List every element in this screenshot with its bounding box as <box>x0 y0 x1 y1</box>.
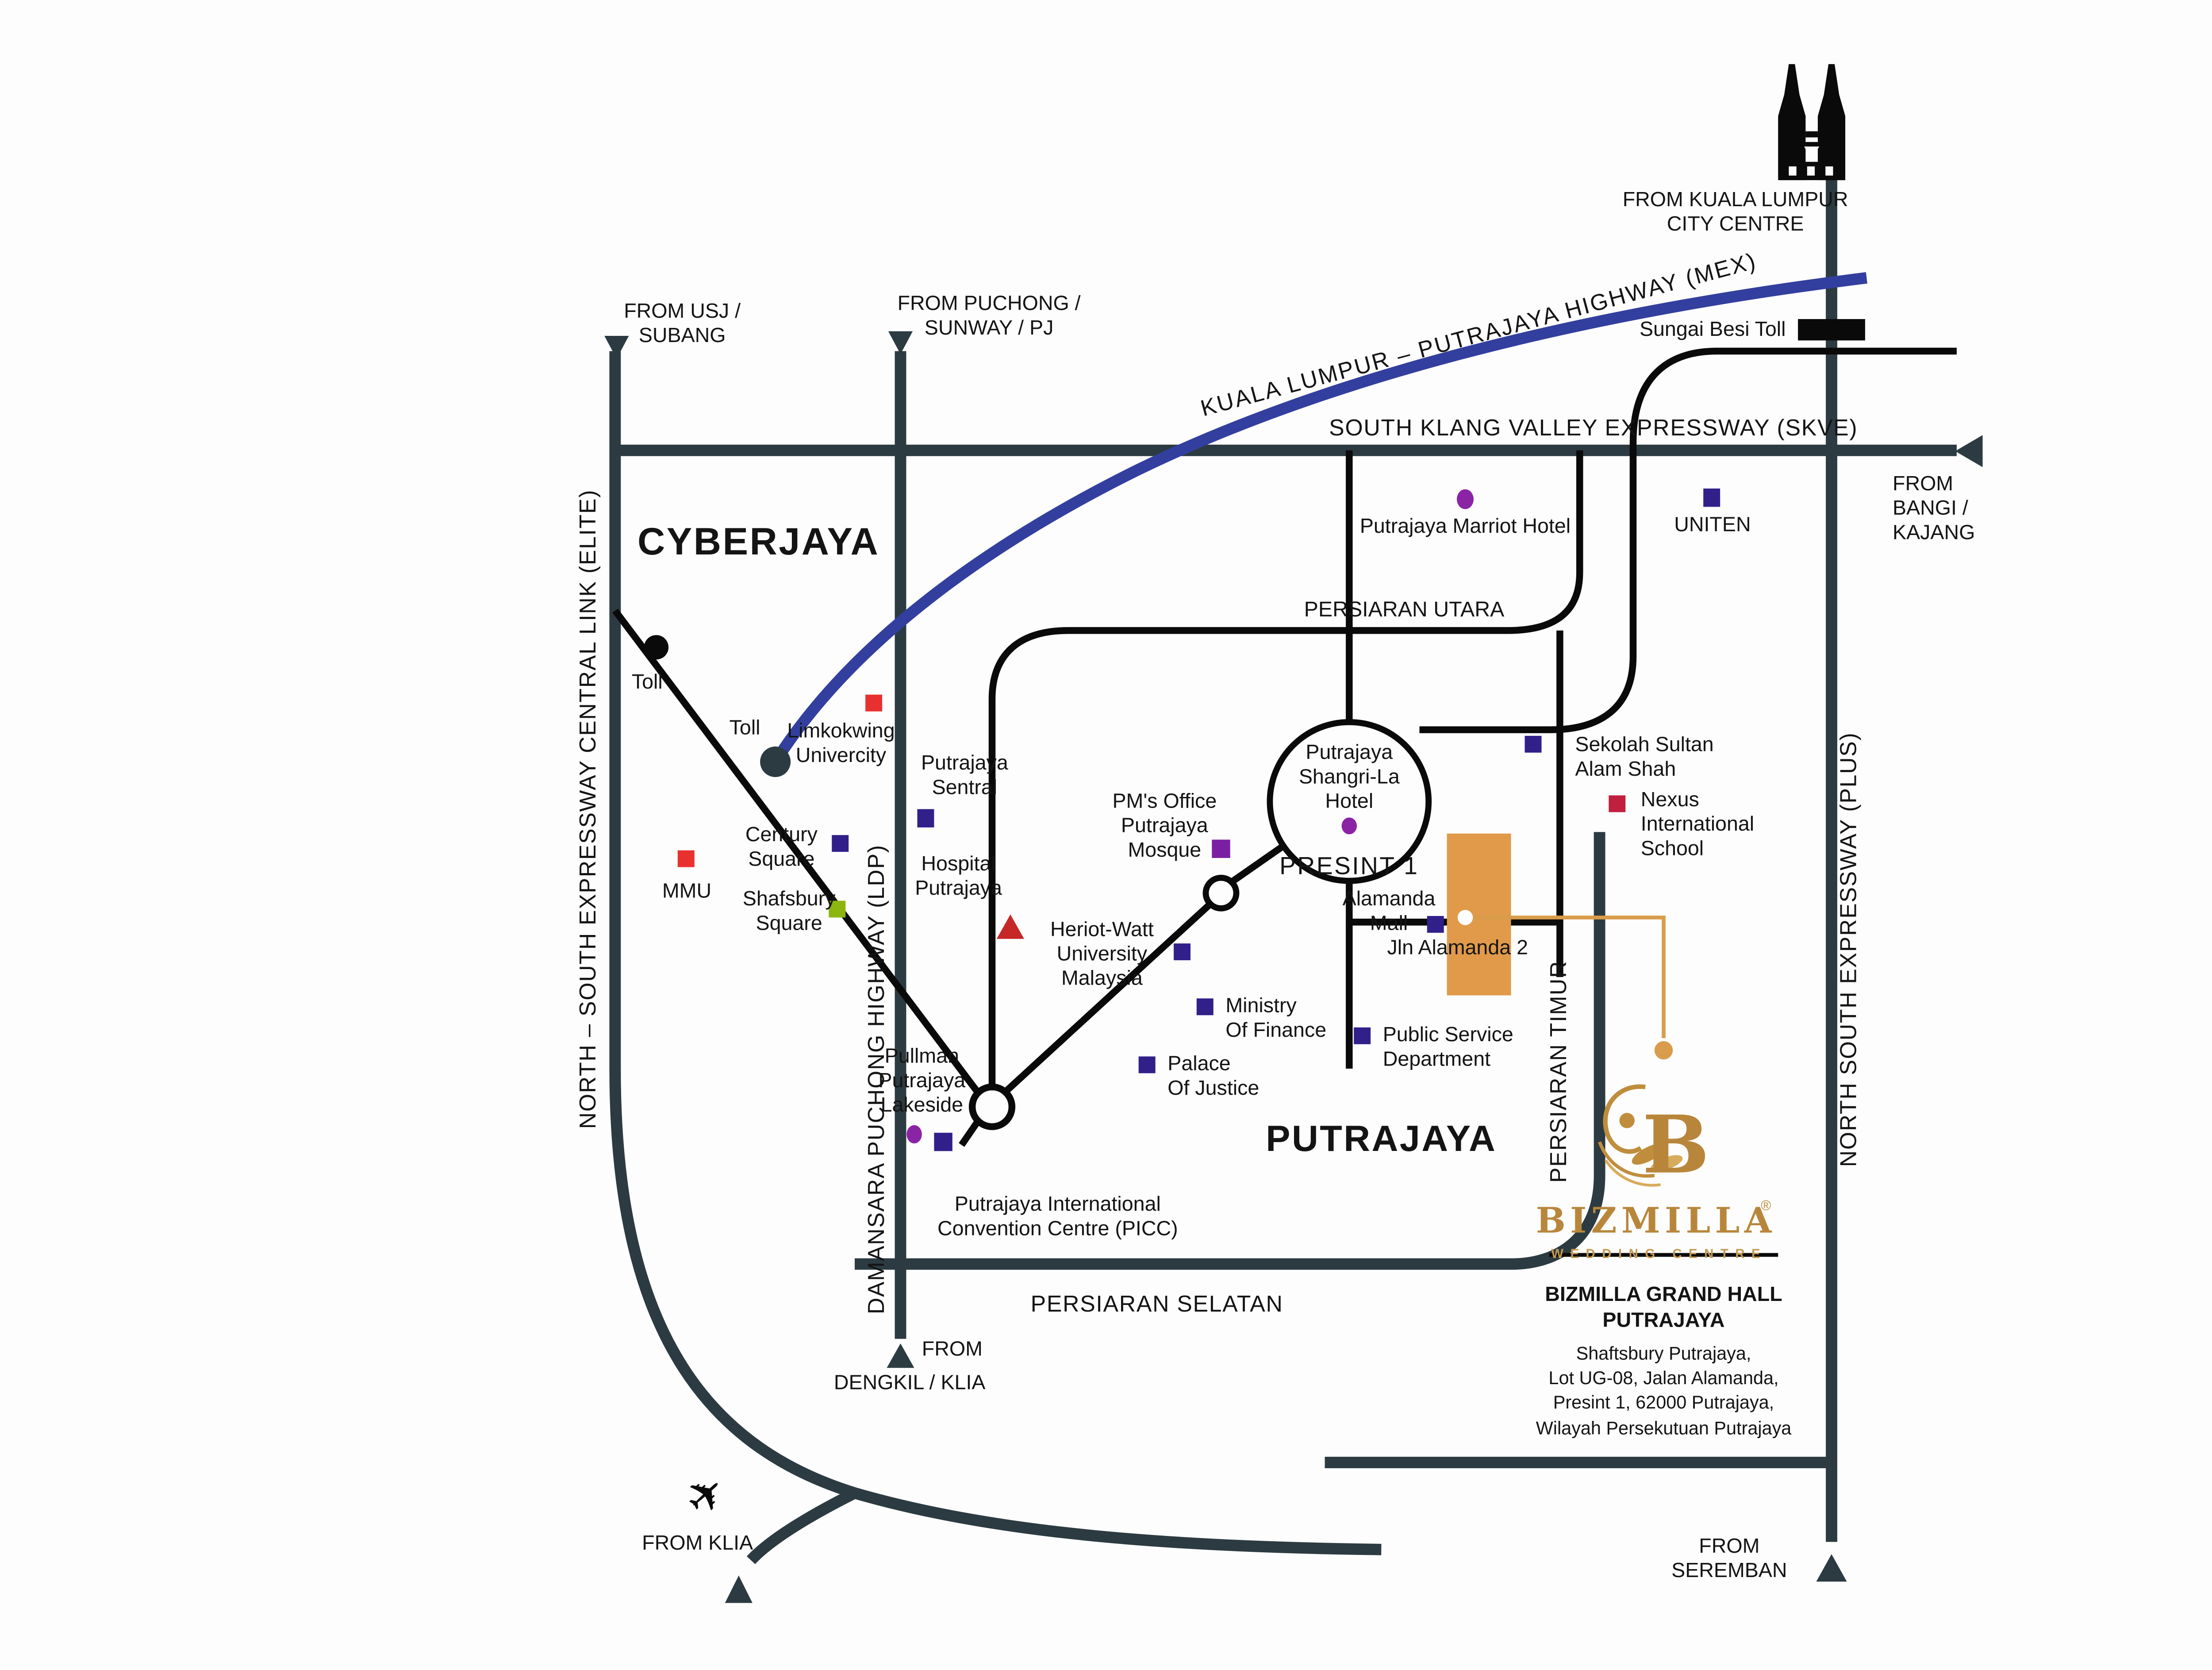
label-sungai-besi-toll: Sungai Besi Toll <box>1640 318 1786 342</box>
label-limkokwing: Limkokwing Univercity <box>787 719 895 768</box>
label-alamanda: Alamanda Mall <box>1343 887 1436 936</box>
uniten-marker <box>1703 489 1720 507</box>
diagonal-to-circle <box>1233 846 1284 881</box>
sentral-marker <box>917 809 934 827</box>
brand-tagline: WEDDING CENTRE <box>1551 1246 1767 1261</box>
label-from-usj: FROM USJ / SUBANG <box>624 299 741 348</box>
label-pullman: Pullman Putrajaya Lakeside <box>878 1044 965 1117</box>
label-plus: NORTH SOUTH EXPRESSWAY (PLUS) <box>1836 732 1863 1167</box>
bizmilla-building-dot <box>1458 910 1473 925</box>
picc-marker <box>934 1133 952 1151</box>
brand-reg-mark: ® <box>1761 1198 1771 1214</box>
heriot-triangle-marker <box>997 915 1024 939</box>
heriot-marker <box>1174 943 1190 960</box>
bizmilla-connector-dot <box>1655 1041 1673 1059</box>
label-ministry: Ministry Of Finance <box>1225 994 1326 1043</box>
map-canvas: B <box>0 0 2212 1670</box>
svg-text:B: B <box>1642 1099 1709 1192</box>
nexus-marker <box>1609 795 1625 812</box>
palace-marker <box>1139 1056 1156 1073</box>
label-palace: Palace Of Justice <box>1167 1052 1259 1101</box>
toll-branch-road <box>1420 351 1957 730</box>
label-from-kl: FROM KUALA LUMPUR CITY CENTRE <box>1623 188 1848 237</box>
arrow-from-bangi <box>1955 435 1982 467</box>
label-from-dengkil-1: FROM <box>922 1337 983 1362</box>
label-nexus: Nexus International School <box>1641 788 1754 861</box>
label-from-klia: FROM KLIA <box>642 1531 753 1555</box>
label-toll-elite: Toll <box>632 670 663 695</box>
venue-address: Shaftsbury Putrajaya, Lot UG-08, Jalan A… <box>1536 1341 1792 1440</box>
label-putrajaya: PUTRAJAYA <box>1266 1119 1497 1162</box>
label-skve: SOUTH KLANG VALLEY EXPRESSWAY (SKVE) <box>1329 416 1858 443</box>
label-from-puchong: FROM PUCHONG / SUNWAY / PJ <box>898 292 1081 340</box>
mmu-marker <box>678 850 695 867</box>
psd-marker <box>1354 1027 1371 1044</box>
label-presint1: PRESINT 1 <box>1279 854 1419 883</box>
label-mmu: MMU <box>662 879 711 904</box>
arrow-from-klia <box>725 1575 753 1603</box>
label-cyberjaya: CYBERJAYA <box>637 521 879 566</box>
arrow-from-dengkil <box>887 1343 914 1368</box>
diagonal-to-picc <box>962 1120 979 1145</box>
label-toll-mex: Toll <box>730 716 760 740</box>
label-from-dengkil-2: DENGKIL / KLIA <box>834 1371 986 1395</box>
label-uniten: UNITEN <box>1674 513 1751 537</box>
location-map: B FROM USJ / SUBANG FROM PUCHONG / SUNWA… <box>0 0 2212 1670</box>
arrow-from-seremban <box>1816 1554 1847 1581</box>
shangrila-marker <box>1342 817 1357 834</box>
klcc-towers-icon <box>1778 64 1845 180</box>
label-from-bangi: FROM BANGI / KAJANG <box>1893 472 1975 545</box>
marriot-marker <box>1457 489 1474 509</box>
century-marker <box>832 835 849 852</box>
venue-title: BIZMILLA GRAND HALL PUTRAJAYA <box>1545 1282 1782 1334</box>
label-shangrila: Putrajaya Shangri-La Hotel <box>1299 741 1400 814</box>
label-psd: Public Service Department <box>1383 1023 1513 1072</box>
label-sekolah: Sekolah Sultan Alam Shah <box>1575 733 1713 781</box>
label-picc: Putrajaya International Convention Centr… <box>937 1193 1178 1241</box>
toll-elite-dot <box>644 635 668 659</box>
pullman-marker <box>906 1125 922 1143</box>
label-persiaran-selatan: PERSIARAN SELATAN <box>1031 1292 1283 1319</box>
label-persiaran-utara: PERSIARAN UTARA <box>1304 596 1505 622</box>
bizmilla-logo-monogram: B <box>1600 1087 1709 1192</box>
limkokwing-marker <box>865 695 882 712</box>
picc-roundabout <box>972 1087 1012 1127</box>
bizmilla-building <box>1447 834 1511 996</box>
label-pm-office: PM's Office Putrajaya Mosque <box>1112 789 1217 862</box>
pm-roundabout <box>1206 878 1237 908</box>
label-shafsbury-square: Shafsbury Square <box>743 887 836 936</box>
label-jln-alamanda2: Jln Alamanda 2 <box>1387 936 1528 960</box>
brand-name: BIZMILLA <box>1536 1201 1776 1242</box>
label-elite: NORTH – SOUTH EXPRESSWAY CENTRAL LINK (E… <box>576 489 603 1129</box>
label-marriot: Putrajaya Marriot Hotel <box>1360 515 1571 539</box>
klia-branch-road <box>751 1493 855 1560</box>
label-from-seremban: FROM SEREMBAN <box>1671 1535 1787 1583</box>
sungai-besi-toll-icon <box>1798 319 1865 340</box>
ministry-marker <box>1197 998 1214 1015</box>
label-heriot: Heriot-Watt University Malaysia <box>1050 918 1154 991</box>
label-hospital: Hospital Putrajaya <box>915 852 1002 900</box>
toll-mex-dot <box>760 746 791 777</box>
label-persiaran-timur: PERSIARAN TIMUR <box>1546 961 1573 1183</box>
sekolah-marker <box>1525 736 1542 753</box>
label-century-square: Century Square <box>745 823 818 872</box>
label-putrajaya-sentral: Putrajaya Sentral <box>921 751 1008 800</box>
